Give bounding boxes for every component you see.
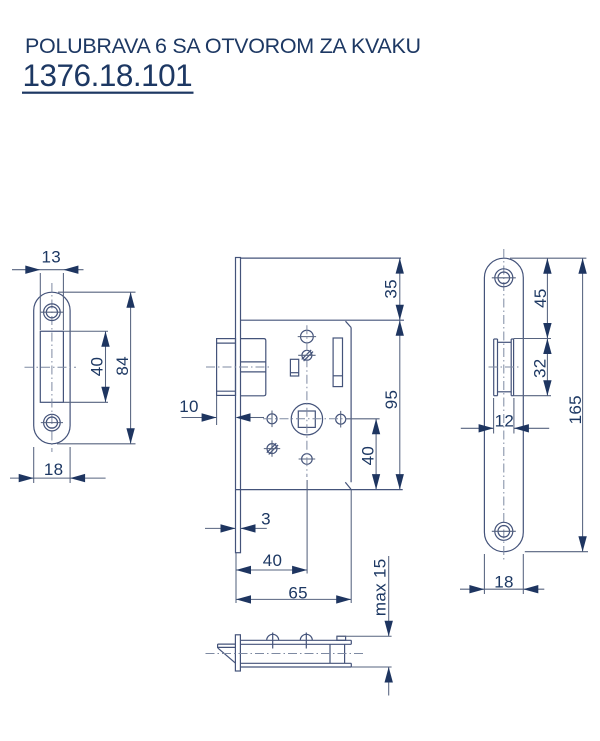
svg-text:45: 45 (531, 288, 550, 308)
svg-text:18: 18 (44, 460, 64, 479)
svg-text:12: 12 (495, 412, 515, 431)
svg-text:40: 40 (87, 357, 106, 377)
svg-text:65: 65 (288, 583, 308, 602)
svg-text:84: 84 (113, 356, 132, 376)
svg-text:40: 40 (358, 446, 377, 466)
svg-text:max 15: max 15 (370, 559, 389, 617)
svg-text:165: 165 (566, 395, 585, 424)
svg-text:18: 18 (494, 572, 514, 591)
svg-text:POLUBRAVA 6 SA OTVOROM ZA KVAK: POLUBRAVA 6 SA OTVOROM ZA KVAKU (25, 34, 421, 58)
svg-text:95: 95 (382, 390, 401, 410)
svg-text:10: 10 (179, 397, 199, 416)
svg-text:32: 32 (531, 358, 550, 378)
svg-text:1376.18.101: 1376.18.101 (23, 57, 193, 93)
svg-text:40: 40 (263, 551, 283, 570)
svg-text:3: 3 (261, 510, 271, 529)
svg-text:35: 35 (381, 279, 400, 299)
svg-text:13: 13 (41, 247, 61, 266)
